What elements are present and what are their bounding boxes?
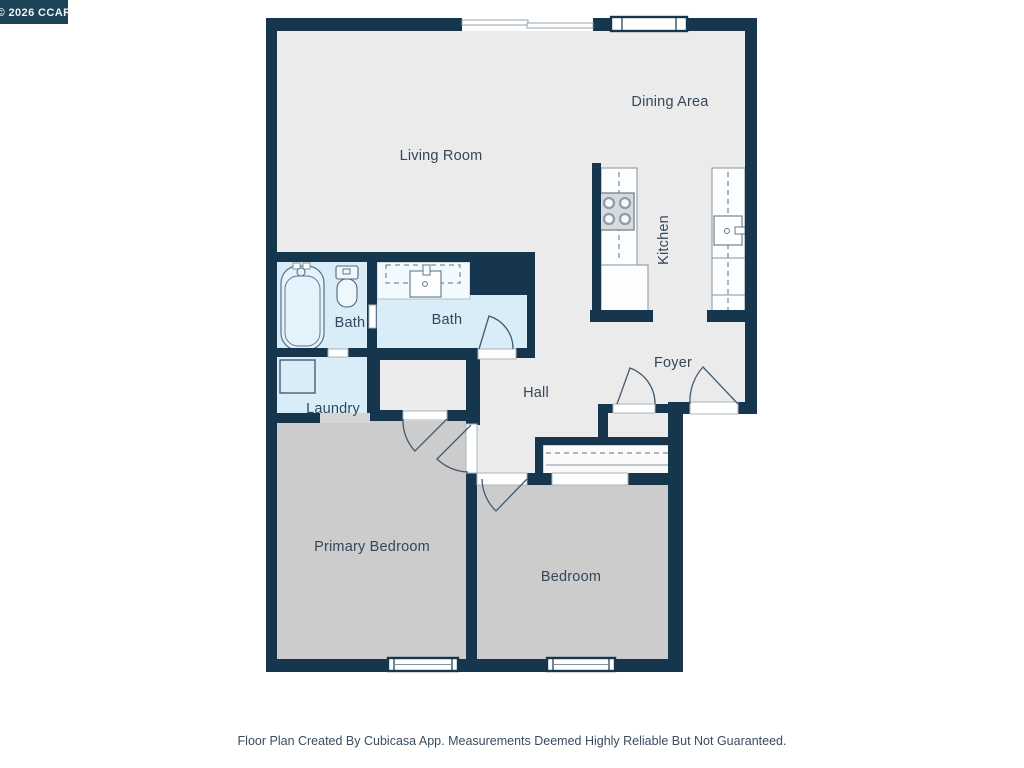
bathtub-icon — [281, 263, 324, 350]
room-label-bath-1: Bath — [335, 315, 366, 331]
copyright-badge: © 2026 CCAR — [0, 0, 71, 24]
primary-bedroom-window-icon — [388, 658, 458, 671]
room-label-dining-area: Dining Area — [631, 94, 709, 110]
badge-text: © 2026 CCAR — [0, 7, 71, 19]
bedroom-door-threshold — [477, 473, 527, 485]
footer-disclaimer: Floor Plan Created By Cubicasa App. Meas… — [238, 734, 787, 748]
room-label-living-room: Living Room — [400, 148, 483, 164]
bedroom-window-icon — [547, 658, 615, 671]
nook-door-threshold — [613, 404, 655, 413]
room-label-foyer: Foyer — [654, 355, 692, 371]
room-label-bedroom: Bedroom — [541, 569, 601, 585]
room-label-bath-2: Bath — [432, 312, 463, 328]
room-label-hall: Hall — [523, 385, 549, 401]
toilet-icon — [336, 266, 358, 307]
room-label-kitchen: Kitchen — [656, 215, 672, 265]
washer-icon — [280, 360, 315, 393]
dining-window-icon — [611, 17, 687, 31]
primary-closet-floor — [380, 360, 468, 411]
hall-closet — [543, 445, 673, 475]
floor-plan-canvas: Living Room Dining Area Kitchen Bath Bat… — [0, 0, 1024, 768]
kitchen-sink-icon — [714, 216, 745, 245]
primary-bedroom-door-threshold — [466, 424, 477, 473]
primary-closet-door-threshold — [403, 411, 447, 420]
room-label-laundry: Laundry — [306, 401, 360, 417]
hall-lower-floor — [535, 404, 598, 438]
entry-door-threshold — [690, 402, 738, 414]
hall-closet-opening — [552, 473, 628, 485]
stove-icon — [600, 193, 634, 230]
vanity-sink-icon — [377, 262, 470, 299]
floor-plan-page: Living Room Dining Area Kitchen Bath Bat… — [0, 0, 1024, 768]
hall-strip-floor — [477, 404, 535, 474]
bath2-door-threshold — [478, 349, 516, 359]
room-label-primary-bedroom: Primary Bedroom — [314, 539, 430, 555]
balcony-rail-right — [527, 23, 593, 28]
bath1-laundry-opening — [328, 349, 348, 357]
bath1-bath2-pocket-door — [369, 305, 376, 328]
closet-interior — [543, 445, 673, 475]
balcony-rail-left — [462, 20, 528, 25]
